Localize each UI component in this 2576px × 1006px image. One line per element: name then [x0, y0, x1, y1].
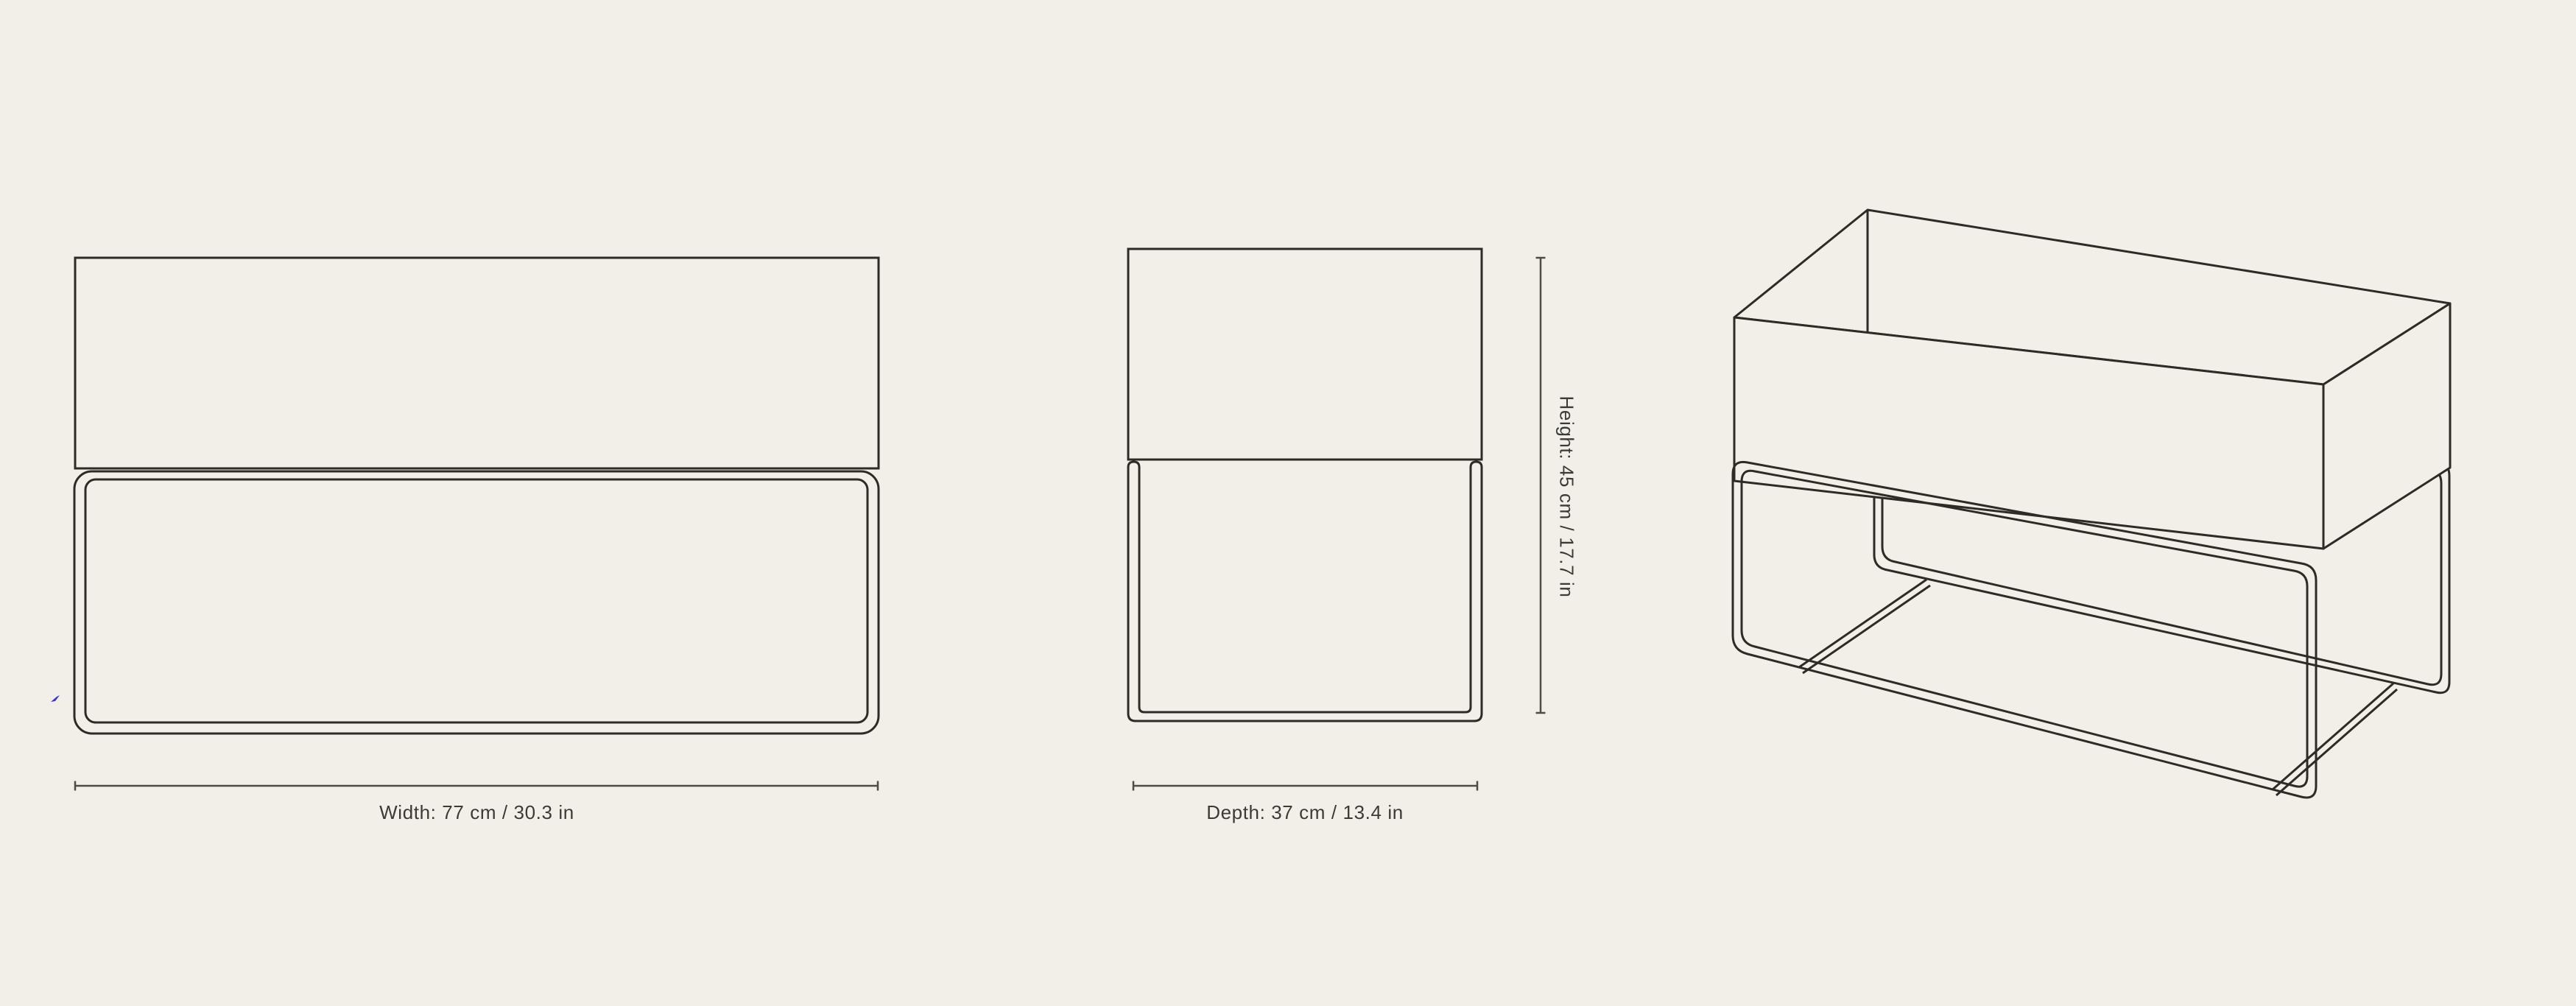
perspective-view-drawing: [1733, 210, 2450, 798]
depth-dimension-label: Depth: 37 cm / 13.4 in: [1128, 801, 1482, 824]
perspective-box: [1734, 210, 2450, 549]
front-view-stand-inner: [85, 479, 868, 722]
side-view-stand: [1128, 462, 1482, 721]
blue-artifact-mark: [51, 695, 60, 702]
front-view-stand-outer: [74, 471, 879, 734]
product-dimension-diagram: Width: 77 cm / 30.3 in Depth: 37 cm / 13…: [0, 0, 2576, 1006]
width-dimension-line: [75, 781, 878, 791]
dimension-drawings-svg: [0, 0, 2576, 1006]
height-dimension-line: [1536, 258, 1546, 713]
side-view-box: [1128, 249, 1482, 460]
front-view-box: [75, 258, 879, 468]
side-view-drawing: [1128, 249, 1482, 721]
height-dimension-label: Height: 45 cm / 17.7 in: [1555, 350, 1578, 644]
depth-dimension-line: [1133, 781, 1477, 791]
front-view-drawing: [74, 258, 879, 734]
width-dimension-label: Width: 77 cm / 30.3 in: [75, 801, 879, 824]
